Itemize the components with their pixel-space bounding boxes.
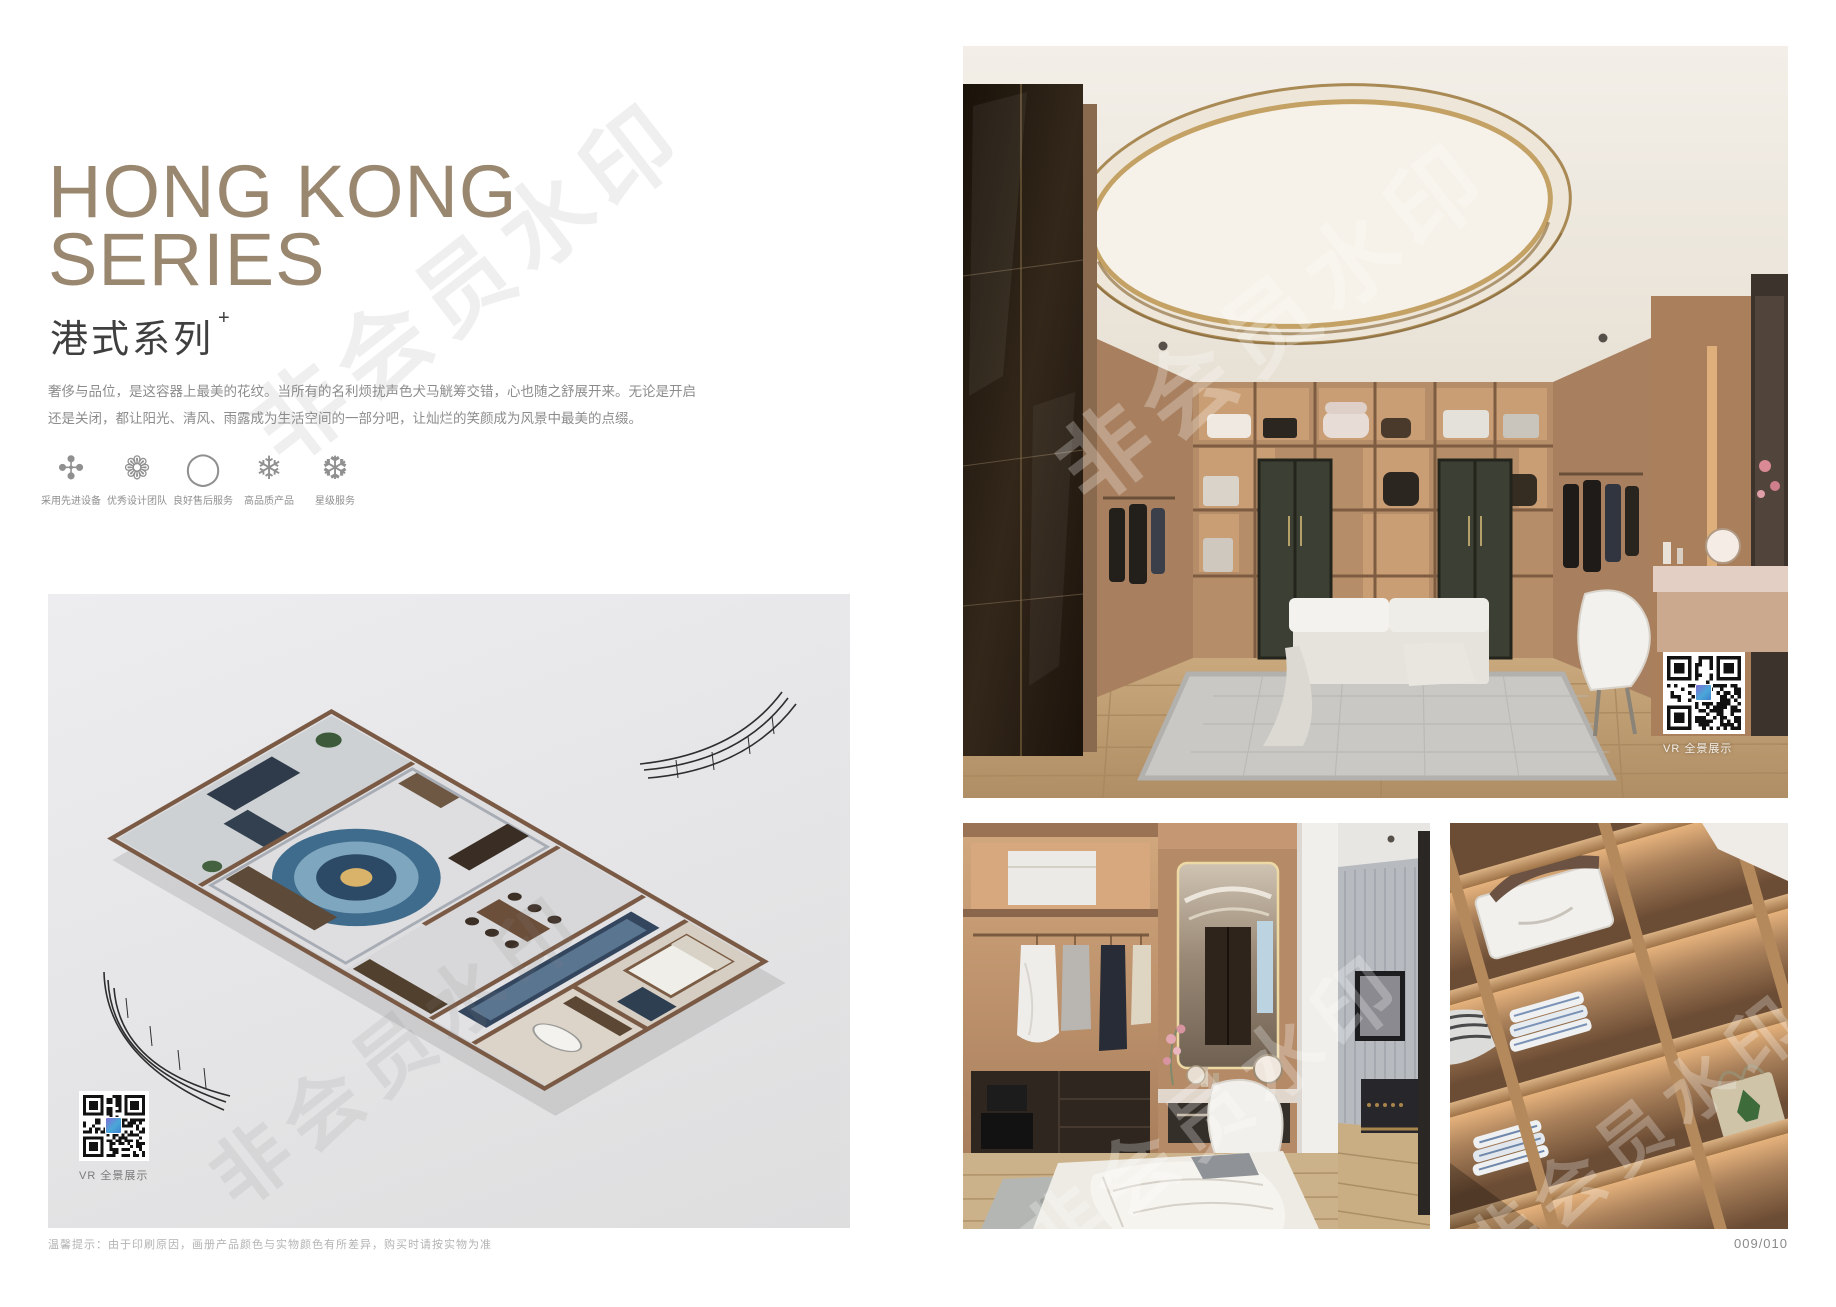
star-ornament-icon: ❆ — [302, 448, 368, 488]
dressing-area-photo — [963, 823, 1430, 1229]
feature-label: 良好售后服务 — [170, 492, 236, 507]
series-description: 奢侈与品位，是这容器上最美的花纹。当所有的名利烦扰声色犬马觥筹交错，心也随之舒展… — [48, 378, 696, 432]
feature-star-service: ❆ 星级服务 — [302, 448, 368, 507]
floorplan-qr-label: VR 全景展示 — [79, 1167, 149, 1183]
series-title: HONG KONG SERIES — [48, 158, 517, 294]
main-closet-photo: VR 全景展示 — [963, 46, 1788, 798]
ring-icon: ◯ — [170, 448, 236, 488]
vr-cube-logo-icon — [1695, 684, 1712, 701]
floorplan-qr-code — [79, 1091, 149, 1161]
feature-label: 采用先进设备 — [38, 492, 104, 507]
series-subtitle-cn: 港式系列+ — [50, 308, 229, 363]
feature-design-team: ❁ 优秀设计团队 — [104, 448, 170, 507]
vr-cube-logo-icon — [105, 1117, 122, 1134]
series-title-line2: SERIES — [48, 226, 517, 294]
snowflake-icon: ❄ — [236, 448, 302, 488]
feature-label: 星级服务 — [302, 492, 368, 507]
feature-advanced-equipment: ✣ 采用先进设备 — [38, 448, 104, 507]
main-photo-qr-code — [1663, 652, 1745, 734]
floorplan-image: VR 全景展示 — [48, 594, 850, 1228]
feature-after-sales: ◯ 良好售后服务 — [170, 448, 236, 507]
feature-label: 高品质产品 — [236, 492, 302, 507]
catalog-page: HONG KONG SERIES 港式系列+ 奢侈与品位，是这容器上最美的花纹。… — [0, 0, 1836, 1307]
main-photo-qr-label: VR 全景展示 — [1663, 740, 1745, 756]
series-title-line1: HONG KONG — [48, 158, 517, 226]
feature-quality-product: ❄ 高品质产品 — [236, 448, 302, 507]
ornament-flower-icon: ✣ — [38, 448, 104, 488]
main-photo-qr-block: VR 全景展示 — [1663, 652, 1745, 756]
footer-disclaimer: 温馨提示：由于印刷原因，画册产品颜色与实物颜色有所差异，购买时请按实物为准 — [48, 1236, 492, 1252]
rosette-icon: ❁ — [104, 448, 170, 488]
page-number: 009/010 — [1734, 1236, 1788, 1251]
floorplan-qr-block: VR 全景展示 — [79, 1091, 149, 1183]
shelf-closeup-photo — [1450, 823, 1788, 1229]
plus-mark: + — [218, 307, 233, 329]
feature-label: 优秀设计团队 — [104, 492, 170, 507]
feature-row: ✣ 采用先进设备 ❁ 优秀设计团队 ◯ 良好售后服务 ❄ 高品质产品 ❆ 星级服… — [38, 448, 368, 507]
